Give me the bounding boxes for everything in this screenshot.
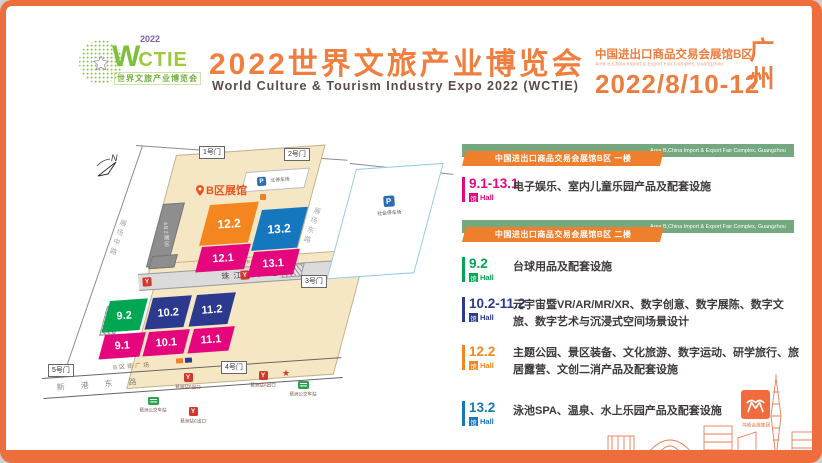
gate-5: 5号门 <box>48 364 74 377</box>
legend-section2-badge: 中国进出口商品交易会展馆B区 二楼 <box>462 227 664 242</box>
map-hall-13-1: 13.1 <box>247 249 300 278</box>
map-building-small <box>148 254 177 269</box>
logo-tagline: 世界文旅产业博览会 <box>114 72 201 85</box>
map-hall-9-2: 9.2 <box>102 298 148 332</box>
wctie-logo: WCTIE 2022 世界文旅产业博览会 <box>78 32 206 96</box>
svg-text:N: N <box>111 153 118 163</box>
metro-icon: Y <box>142 277 152 287</box>
w-wings-icon <box>744 395 767 415</box>
metro-exit-c: Y 琶洲站C出口 <box>166 407 220 426</box>
parking-icon: P <box>383 195 395 207</box>
legend-entry-hall-13-2: 13.2 馆 Hall <box>462 401 495 426</box>
map-hall-12-1: 12.1 <box>195 244 251 273</box>
legend-entry-desc: 元宇宙暨VR/AR/MR/XR、数字创意、数字展陈、数字文旅、数字艺术与沉浸式空… <box>513 297 801 330</box>
expo-poster: WCTIE 2022 世界文旅产业博览会 2022世界文旅产业博览会 World… <box>0 0 822 463</box>
legend-entry-desc: 台球用品及配套设施 <box>513 259 801 276</box>
map-hall-9-1: 9.1 <box>98 332 145 359</box>
gate-3: 3号门 <box>301 275 327 288</box>
page-subtitle: World Culture & Tourism Industry Expo 20… <box>212 79 579 93</box>
organizer-logo <box>741 390 770 419</box>
legend-entry-desc: 电子娱乐、室内儿童乐园产品及配套设施 <box>513 179 801 196</box>
legend-entry-hall-9-1-13-1: 9.1-13.1 馆 Hall <box>462 177 519 202</box>
page-title: 2022世界文旅产业博览会 <box>209 39 585 83</box>
bus-icon <box>148 397 159 405</box>
venue-block: 中国进出口商品交易会展馆B区 Area B,China Import & Exp… <box>595 46 755 100</box>
legend-section1-badge: 中国进出口商品交易会展馆B区 一楼 <box>462 151 664 166</box>
location-pin-icon <box>196 185 204 196</box>
compass-icon: N <box>94 152 124 187</box>
map-hall-11-1: 11.1 <box>187 326 234 353</box>
logo-w: W <box>112 40 138 73</box>
organizer-name: 鸿威会展集团 <box>737 421 775 428</box>
public-parking: P 社会停车场 <box>326 163 443 279</box>
metro-exit-b: Y 琶洲站B出口 <box>161 373 215 392</box>
legend-entry-hall-12-2: 12.2 馆 Hall <box>462 345 495 370</box>
gate-1: 1号门 <box>199 146 225 159</box>
venue-name-en: Area B,China Import & Export Fair Comple… <box>595 62 731 67</box>
bus-station-east: 琶洲公交车站 <box>278 381 328 399</box>
area-b-label: B区展馆 <box>196 182 247 198</box>
city-label: 广 州 <box>748 37 776 93</box>
metro-icon: Y <box>184 373 193 382</box>
logo-ctie: CTIE <box>138 49 188 71</box>
legend-entry-hall-9-2: 9.2 馆 Hall <box>462 257 494 282</box>
map-hall-10-1: 10.1 <box>142 329 189 356</box>
logo-year: 2022 <box>140 34 160 44</box>
metro-icon: Y <box>259 371 268 380</box>
guangzhou-skyline-art <box>604 374 820 463</box>
venue-name-cn: 中国进出口商品交易会展馆B区 <box>595 46 755 62</box>
parking-icon: P <box>257 176 267 186</box>
taxi-point-icon <box>260 194 266 200</box>
metro-icon: Y <box>189 407 198 416</box>
gate-2: 2号门 <box>284 148 310 161</box>
bus-icon <box>298 381 309 389</box>
event-dates: 2022/8/10-12 <box>595 69 755 100</box>
